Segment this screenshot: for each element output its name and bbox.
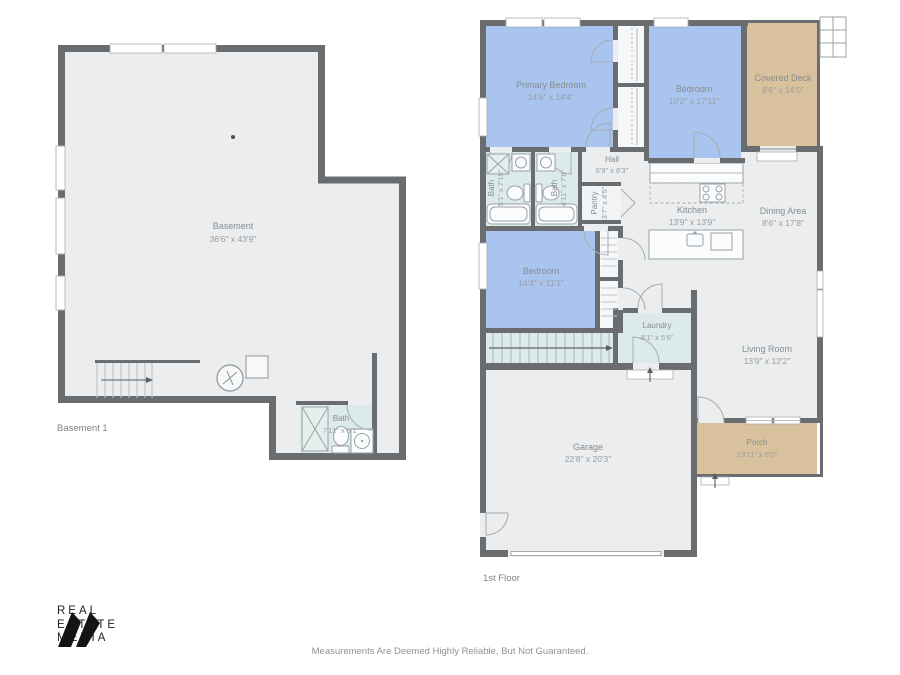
- window: [817, 290, 823, 337]
- window: [56, 276, 65, 310]
- primary-bedroom-dims: 14'6" x 14'4": [528, 92, 575, 102]
- living-room-label: Living Room: [742, 344, 792, 354]
- laundry-dims: 8'1" x 5'6": [641, 333, 674, 342]
- covered-deck-dims: 8'6" x 14'0": [762, 85, 804, 95]
- basement-bath-label: Bath: [333, 414, 349, 423]
- real-estate-media-logo-icon: [57, 605, 103, 647]
- door-opening: [584, 226, 608, 231]
- disclaimer-text: Measurements Are Deemed Highly Reliable,…: [0, 646, 900, 657]
- door-opening: [613, 108, 618, 130]
- window: [479, 243, 487, 289]
- porch-label: Porch: [747, 438, 768, 447]
- door-opening: [633, 363, 659, 370]
- window: [544, 18, 580, 27]
- dining-area-dims: 8'6" x 17'8": [762, 218, 804, 228]
- door-opening: [618, 238, 623, 260]
- door-opening: [698, 418, 724, 423]
- sink-icon: [512, 154, 530, 171]
- bath1-label: Bath: [487, 180, 496, 196]
- sink-icon: [537, 154, 555, 171]
- window: [56, 198, 65, 254]
- bedroom3-dims: 14'4" x 11'1": [518, 278, 564, 288]
- pantry-label: Pantry: [590, 191, 599, 214]
- door-opening: [613, 40, 618, 62]
- porch-area: [697, 423, 817, 474]
- deck-steps-icon: [820, 17, 846, 57]
- garage-label: Garage: [573, 442, 603, 452]
- door-opening: [549, 147, 571, 152]
- kitchen-dims: 13'9" x 13'9": [669, 217, 716, 227]
- door-opening: [490, 147, 512, 152]
- water-heater-icon: [217, 365, 243, 391]
- door-opening: [638, 308, 662, 313]
- basement-room-dims: 36'6" x 43'9": [210, 234, 257, 244]
- window: [479, 98, 487, 136]
- garage-door: [508, 550, 664, 557]
- door-opening: [586, 147, 610, 152]
- kitchen-label: Kitchen: [677, 205, 707, 215]
- bedroom2-label: Bedroom: [676, 84, 713, 94]
- window: [654, 18, 688, 27]
- toilet-icon: [507, 184, 530, 202]
- furnace-icon: [246, 356, 268, 378]
- covered-deck-label: Covered Deck: [754, 73, 812, 83]
- garage-dims: 22'8" x 20'3": [565, 454, 612, 464]
- window: [506, 18, 542, 27]
- hall-label: Hall: [605, 155, 619, 164]
- window: [110, 44, 162, 53]
- bath2-label: Bath: [550, 180, 559, 196]
- ceiling-fixture-dot: [231, 135, 235, 139]
- dining-area-label: Dining Area: [760, 206, 807, 216]
- basement-plan: Basement 36'6" x 43'9" Bath 7'11" x 5'1"…: [56, 44, 403, 457]
- hall-dims: 6'9" x 6'3": [596, 166, 629, 175]
- primary-bedroom-label: Primary Bedroom: [516, 80, 586, 90]
- door-opening: [480, 513, 486, 537]
- bedroom2-dims: 10'2" x 17'11": [669, 96, 720, 106]
- door-opening: [618, 288, 623, 310]
- living-room-dims: 13'9" x 12'2": [744, 356, 791, 366]
- bath2-dims: 4'11" x 7'8": [559, 169, 568, 206]
- window: [817, 271, 823, 289]
- window: [164, 44, 216, 53]
- bath1-dims: 5'1" x 7'10": [496, 169, 505, 206]
- kitchen-island: [649, 230, 743, 259]
- floorplan-page: Basement 36'6" x 43'9" Bath 7'11" x 5'1"…: [0, 0, 900, 675]
- door-opening: [694, 158, 720, 163]
- window: [56, 146, 65, 190]
- basement-bath-dims: 7'11" x 5'1": [323, 426, 360, 435]
- stove-icon: [700, 184, 725, 202]
- bedroom3-label: Bedroom: [523, 266, 560, 276]
- sliding-door: [757, 146, 797, 161]
- first-floor-label: 1st Floor: [483, 573, 520, 584]
- brand-logo: REAL ESTATE MEDIA: [57, 605, 118, 646]
- laundry-label: Laundry: [643, 321, 672, 330]
- basement-floor-label: Basement 1: [57, 423, 108, 434]
- first-floor-plan: Primary Bedroom 14'6" x 14'4" Bedroom 10…: [479, 17, 846, 584]
- basement-room-label: Basement: [213, 221, 254, 231]
- floorplan-drawing: Basement 36'6" x 43'9" Bath 7'11" x 5'1"…: [0, 0, 900, 675]
- pantry-dims: 3'7" x 4'5": [600, 186, 609, 219]
- porch-dims: 13'11" x 6'0": [737, 450, 778, 459]
